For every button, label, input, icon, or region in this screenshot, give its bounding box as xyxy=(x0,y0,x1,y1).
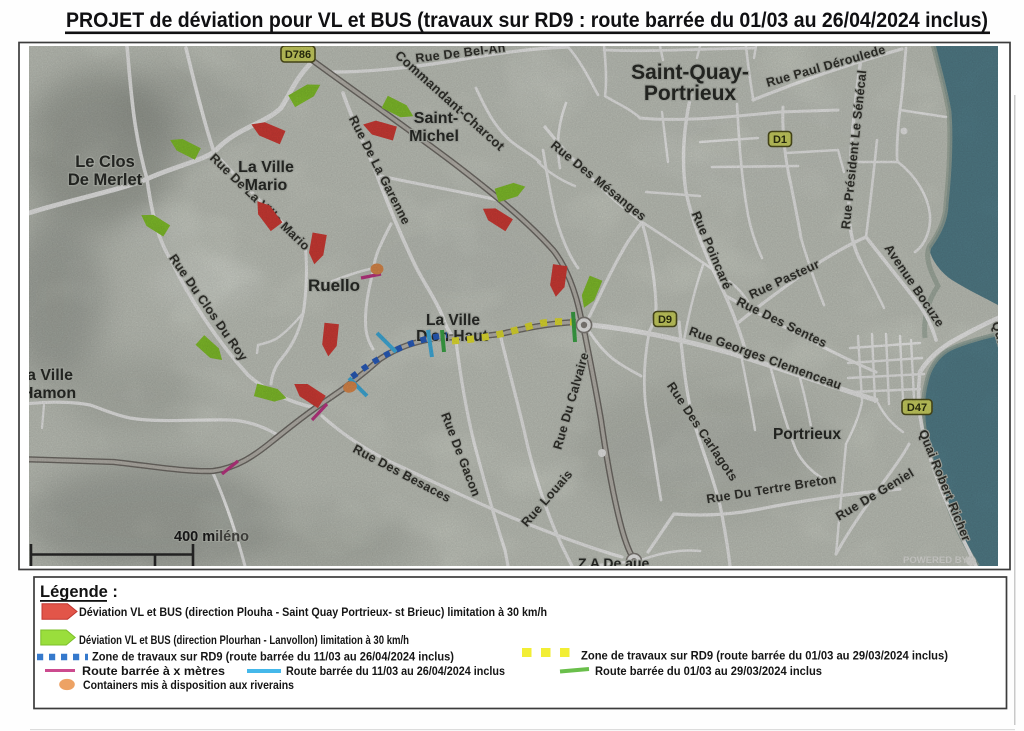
svg-text:Déviation VL et BUS (direction: Déviation VL et BUS (direction Plourhan … xyxy=(79,633,409,647)
svg-text:Containers mis à disposition a: Containers mis à disposition aux riverai… xyxy=(83,678,294,692)
svg-text:Route barrée du 11/03 au 26/04: Route barrée du 11/03 au 26/04/2024 incl… xyxy=(286,664,505,678)
svg-text:Légende :: Légende : xyxy=(40,583,118,601)
svg-text:PROJET de déviation pour VL et: PROJET de déviation pour VL et BUS (trav… xyxy=(66,8,988,32)
svg-text:Déviation VL et BUS (direction: Déviation VL et BUS (direction Plouha - … xyxy=(79,605,547,619)
svg-text:Route barrée du 01/03 au 29/03: Route barrée du 01/03 au 29/03/2024 incl… xyxy=(595,664,822,678)
svg-text:Zone de travaux sur RD9 (route: Zone de travaux sur RD9 (route barrée du… xyxy=(92,650,454,664)
svg-text:Route barrée à x mètres: Route barrée à x mètres xyxy=(82,664,225,678)
svg-text:Zone de travaux sur RD9 (route: Zone de travaux sur RD9 (route barrée du… xyxy=(581,649,948,663)
